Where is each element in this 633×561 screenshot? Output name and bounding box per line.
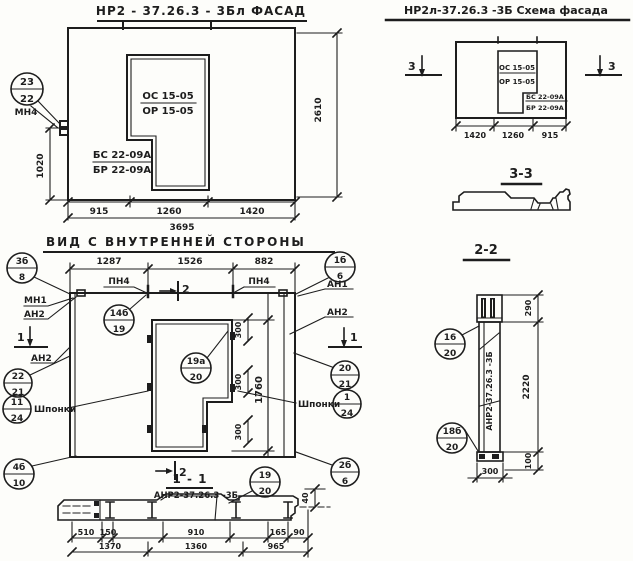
inner-node-19a-num: 19а: [187, 357, 206, 367]
facade-dim-3695: 3695: [169, 223, 194, 233]
schema-view: НР2л-37.26.3 -3Б Схема фасада 3 3 ОС 15-…: [386, 4, 629, 140]
inner-mark1-left-num: 1: [17, 331, 25, 344]
inner-node-4b-sheet: 10: [13, 479, 26, 489]
inner-mn1-label: МН1: [24, 296, 47, 306]
section11-title: 1 - 1: [172, 472, 207, 486]
inner-dim-300-c: 300: [234, 423, 243, 440]
inner-window-key-l3: [147, 425, 152, 433]
section22-node-bot-sheet: 20: [446, 443, 459, 453]
section22-node-top-sheet: 20: [444, 349, 457, 359]
facade-dim-1260: 1260: [156, 207, 181, 217]
facade-dim-915: 915: [90, 207, 109, 217]
inner-node-3b-num: 3б: [16, 256, 29, 267]
inner-node-1-num: 1: [344, 393, 350, 403]
inner-window-frame-inner: [156, 324, 228, 447]
inner-node-2b-leader: [296, 452, 332, 465]
inner-node-3b-leader: [34, 277, 70, 294]
inner-node-1b-leader: [296, 278, 328, 294]
schema-title: НР2л-37.26.3 -3Б Схема фасада: [404, 4, 608, 17]
inner-window-frame-outer: [152, 320, 232, 451]
section22-dim-290: 290: [524, 299, 533, 316]
inner-panel-inner-lines: [75, 293, 284, 457]
facade-dim-2610: 2610: [314, 97, 324, 122]
section11-dim-90: 90: [293, 528, 305, 537]
section22-dim-300: 300: [482, 467, 499, 476]
schema-dim-915: 915: [542, 131, 559, 140]
section22-dim-100: 100: [524, 452, 533, 469]
inner-node-22-num: 22: [12, 372, 25, 382]
inner-node-11-sheet: 24: [11, 414, 24, 424]
inner-shponki-left-leader: [68, 391, 148, 408]
inner-node-1-sheet: 24: [341, 409, 354, 419]
inner-window-key-r3: [202, 425, 207, 433]
inner-node-14b-sheet: 19: [113, 325, 126, 335]
schema-mark-left-num: 3: [408, 60, 416, 73]
section22-node-top-num: 16: [444, 333, 457, 343]
section11-dim-1360: 1360: [185, 542, 208, 551]
schema-window-ref2: ОР 15-05: [499, 78, 535, 86]
inner-pn4-left-label: ПН4: [108, 277, 129, 287]
section22-foot-fill-right: [492, 454, 499, 459]
inner-node-19a-leader: [207, 331, 228, 358]
section11-node-num: 19: [259, 471, 272, 481]
section22-title: 2-2: [474, 243, 498, 258]
section22-node-bot-num: 18б: [443, 426, 462, 437]
section11-dim-910: 910: [188, 528, 205, 537]
schema-block-ref2: БР 22-09А: [526, 104, 564, 112]
facade-window-ref2: ОР 15-05: [142, 106, 193, 117]
inner-mark1-right-num: 1: [350, 331, 358, 344]
facade-dim-left-ext: [46, 128, 68, 200]
section-2-2: 2-2 АНР2-37.26.3 -3Б 290 2220 100 300 16…: [435, 243, 543, 482]
inner-dim-1760: 1760: [254, 376, 265, 404]
inner-dim-300-b: 300: [234, 373, 243, 390]
section11-dim-510: 510: [78, 528, 95, 537]
drawing-sheet: НР2 - 37.26.3 - 3Бл ФАСАД ОС 15-05 ОР 15…: [0, 0, 633, 561]
section-1-1: 2 1 - 1 АНР2-37.26.3 -3Б 19 20 40 510 15…: [58, 462, 330, 557]
section33-title: 3-3: [509, 167, 533, 182]
schema-window-ref1: ОС 15-05: [499, 64, 535, 72]
inner-dim-1287: 1287: [96, 257, 121, 267]
schema-dim-1420: 1420: [464, 131, 487, 140]
inner-mark2-top-num: 2: [182, 283, 190, 296]
facade-title: НР2 - 37.26.3 - 3Бл ФАСАД: [96, 4, 306, 18]
section11-block-hatch: [63, 506, 90, 513]
section22-body-label: АНР2-37.26.3 -3Б: [485, 351, 494, 430]
blueprint-canvas: НР2 - 37.26.3 - 3Бл ФАСАД ОС 15-05 ОР 15…: [0, 0, 633, 561]
section33-profile-details: [505, 192, 558, 209]
inner-mark1-left-arrowhead: [27, 339, 33, 347]
inner-window-key-l2: [147, 383, 152, 391]
section11-rebar-symbols: [106, 502, 292, 518]
inner-shponki-left-label: Шпонки: [34, 405, 76, 415]
inner-node-20-sheet: 21: [339, 380, 352, 390]
section11-dim-165: 165: [270, 528, 287, 537]
inner-node-2b-sheet: 6: [342, 477, 348, 487]
section22-dim-2220: 2220: [522, 374, 532, 399]
facade-dim-1420: 1420: [239, 207, 264, 217]
inner-window-key-l1: [147, 335, 152, 343]
facade-node-num: 23: [20, 77, 34, 88]
section11-dim-150: 150: [100, 528, 117, 537]
section11-dim-965: 965: [268, 542, 285, 551]
inner-node-1b-num: 1б: [334, 255, 347, 266]
inner-node-20-leader: [294, 353, 332, 367]
schema-mark-right-num: 3: [608, 60, 616, 73]
inner-node-19a-sheet: 20: [190, 373, 203, 383]
facade-node-sheet: 22: [20, 94, 34, 105]
inner-node-14b-num: 14б: [110, 308, 129, 319]
section11-dim-40: 40: [301, 492, 310, 504]
inner-pn4-right-leader: [235, 287, 275, 292]
inner-dim-882: 882: [255, 257, 274, 267]
inner-shponki-right-leader: [238, 391, 296, 403]
inner-node-20-num: 20: [339, 364, 352, 374]
section11-block-fill-bot: [94, 513, 99, 518]
section11-dim-1370: 1370: [99, 542, 122, 551]
inner-node-14b-leader: [130, 295, 146, 309]
schema-block-ref1: БС 22-09А: [526, 93, 564, 101]
schema-dim-ext: [456, 118, 566, 131]
facade-block-ref2: БР 22-09А: [93, 165, 151, 176]
facade-block-ref1: БС 22-09А: [93, 150, 151, 161]
inner-dim-300-a: 300: [234, 321, 243, 338]
facade-dim-1020: 1020: [36, 153, 46, 178]
inner-node-4b-leader: [32, 456, 76, 466]
section22-foot-fill-left: [479, 454, 485, 459]
facade-view: НР2 - 37.26.3 - 3Бл ФАСАД ОС 15-05 ОР 15…: [11, 4, 342, 233]
inner-title: ВИД С ВНУТРЕННЕЙ СТОРОНЫ: [46, 234, 306, 249]
inner-an1-leader: [298, 289, 353, 296]
inner-node-4b-num: 4б: [13, 462, 26, 473]
schema-dim-1260: 1260: [502, 131, 525, 140]
section22-node-top-leader: [462, 326, 479, 335]
facade-window-ref1: ОС 15-05: [142, 91, 193, 102]
inner-dim-1526: 1526: [177, 257, 202, 267]
section-3-3: 3-3: [453, 167, 570, 210]
section11-block-fill-top: [94, 501, 99, 506]
inner-pn4-right-label: ПН4: [248, 277, 269, 287]
inner-view: ВИД С ВНУТРЕННЕЙ СТОРОНЫ 1287 1526 882 П…: [3, 234, 361, 489]
inner-node-3b-sheet: 8: [19, 273, 25, 283]
facade-node-label: МН4: [15, 108, 38, 118]
inner-node-11-num: 11: [11, 398, 24, 408]
inner-node-2b-num: 2б: [339, 460, 352, 471]
